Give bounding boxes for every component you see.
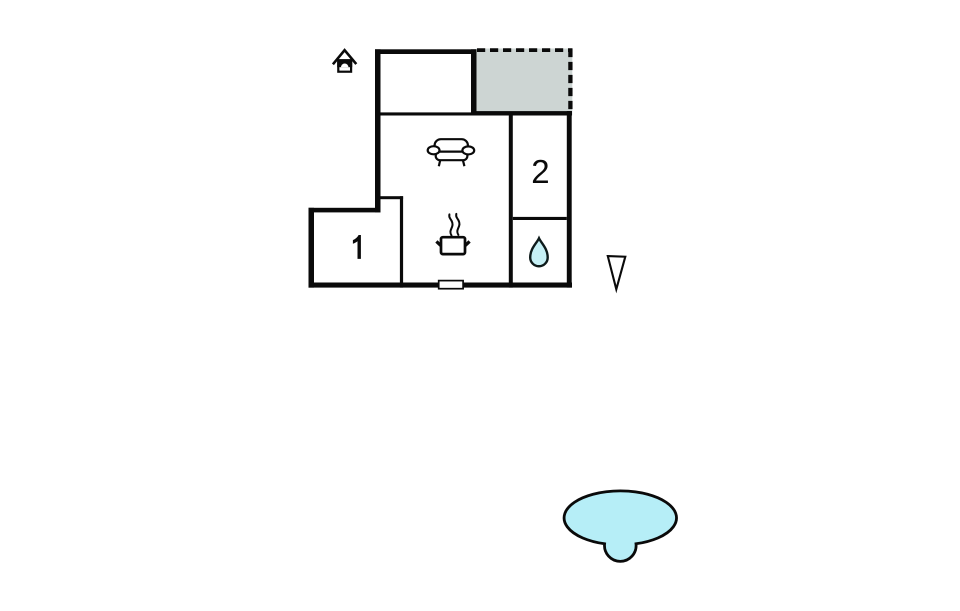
svg-text:2: 2 <box>531 153 549 190</box>
